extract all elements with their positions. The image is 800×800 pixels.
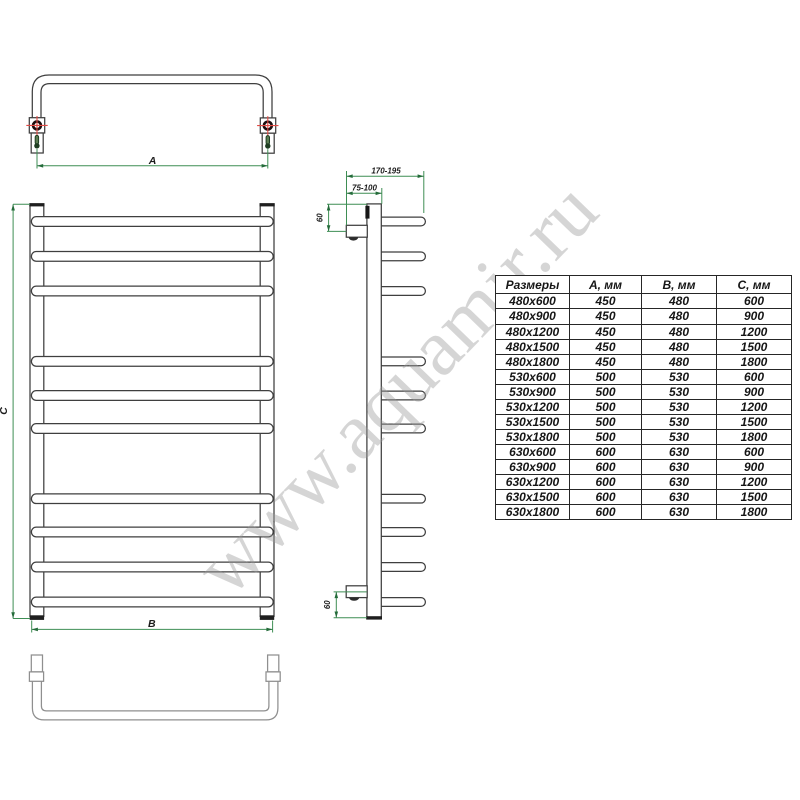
svg-text:75-100: 75-100 [352,184,377,193]
svg-text:B: B [148,618,156,630]
svg-text:60: 60 [323,600,332,609]
svg-text:170-195: 170-195 [371,166,401,175]
svg-text:60: 60 [316,213,325,222]
svg-text:A: A [148,155,157,167]
svg-text:C: C [0,407,10,415]
